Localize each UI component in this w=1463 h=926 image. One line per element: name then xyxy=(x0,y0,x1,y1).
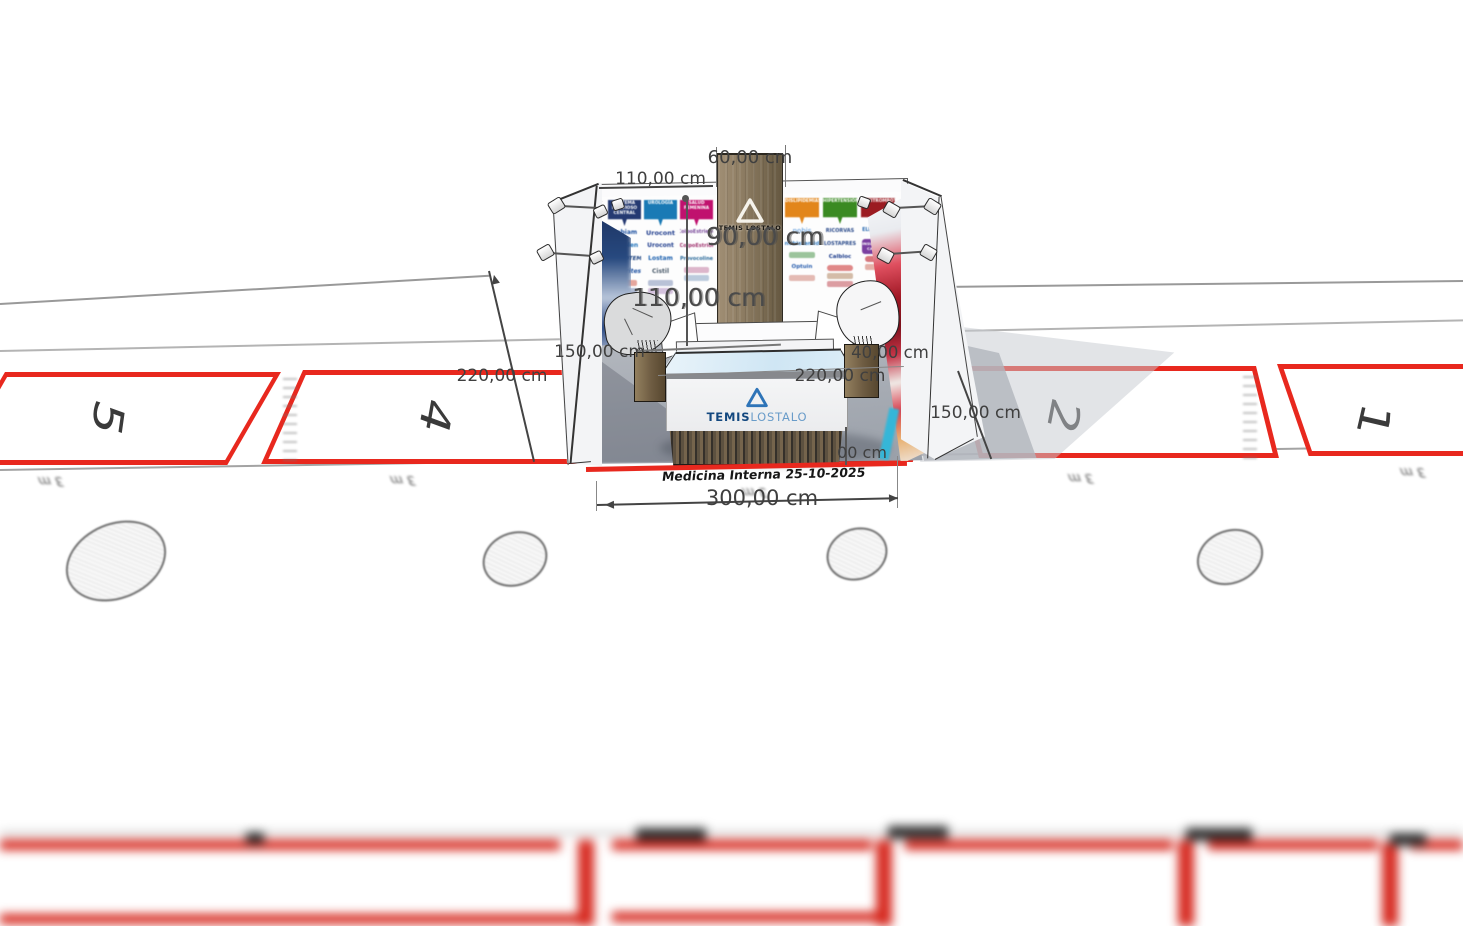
floor-tick-label: 3 m xyxy=(388,472,418,487)
fg-red-band xyxy=(612,840,872,850)
category-header: HIPERTENSIÓN xyxy=(823,198,857,224)
brand-logo-smudge xyxy=(827,273,853,279)
dim-label-partial: 00 cm xyxy=(832,443,892,462)
fg-smudge xyxy=(246,832,264,844)
extension-line-right xyxy=(938,280,1463,287)
counter-triangle-icon xyxy=(745,387,769,408)
dim-label-column-width: 60,00 cm xyxy=(700,147,800,168)
dim-label-right-floor: 150,00 cm xyxy=(928,403,1023,423)
floor-tick-label: 3 m xyxy=(36,473,66,488)
floor-space-5 xyxy=(0,372,281,465)
category-header: UROLOGÍA xyxy=(644,200,677,226)
brand-column-hipertension: HIPERTENSIÓN RICORVAS LOSTAPRES Calbloc xyxy=(823,198,857,289)
counter-logo-text: TEMISLOSTALO xyxy=(707,410,808,424)
foreground-blurred-row xyxy=(0,826,1463,926)
brand-logo: Urocont xyxy=(644,239,677,252)
brand-logo: LOSTAPRES xyxy=(823,237,857,250)
dim-dot xyxy=(682,195,689,202)
fg-red-band-bottom xyxy=(612,912,877,922)
brand-logo-smudge xyxy=(684,267,709,273)
counter-front: TEMISLOSTALO xyxy=(666,379,848,431)
fg-smudge xyxy=(636,828,706,841)
fg-red-vertical xyxy=(876,840,892,926)
counter-wood-slat-base xyxy=(668,431,844,466)
dim-label-top-left: 110,00 cm xyxy=(608,169,713,189)
floor-tick-label: 3 m xyxy=(1398,464,1428,479)
spotlight-icon xyxy=(536,243,555,262)
sketch-line xyxy=(624,319,633,336)
brand-logo: Provocoline xyxy=(680,252,713,265)
floor-column-ellipse xyxy=(53,506,178,617)
event-floor-label: Medicina Interna 25-10-2025 xyxy=(661,465,843,484)
dim-label-right-small: 40,00 cm xyxy=(846,343,934,362)
brand-logo: Lostam xyxy=(644,252,677,265)
brand-logo: Calbloc xyxy=(823,250,857,263)
divider-dimension-strip xyxy=(283,378,297,464)
brand-logo-smudge xyxy=(789,275,815,281)
fg-red-band xyxy=(0,840,560,850)
floor-column-ellipse xyxy=(819,519,895,589)
counter-logo-lostalo: LOSTALO xyxy=(750,410,807,424)
brand-logo-smudge xyxy=(827,265,853,271)
dim-label-column-depth: 90,00 cm xyxy=(706,222,816,251)
fg-smudge xyxy=(1390,834,1426,846)
sketch-line xyxy=(860,301,881,310)
dim-line-vertical xyxy=(686,199,688,346)
fg-smudge xyxy=(888,826,948,839)
fg-red-band-bottom xyxy=(0,914,578,924)
dim-label-booth-width: 300,00 cm xyxy=(692,486,832,510)
floor-tick-label: 3 m xyxy=(1066,470,1096,485)
fg-red-band xyxy=(905,840,1173,850)
fg-red-vertical xyxy=(578,840,594,926)
dim-ext-tick xyxy=(897,456,898,508)
dim-label-mid: 110,00 cm xyxy=(632,283,747,312)
dim-label-left-wall: 150,00 cm xyxy=(552,342,647,362)
counter-logo-temis: TEMIS xyxy=(707,410,751,424)
extension-line-left xyxy=(0,275,489,305)
brand-logo: Optuin xyxy=(785,260,819,273)
brand-logo-smudge xyxy=(789,252,815,258)
category-header: DISLIPIDEMIAS xyxy=(785,198,819,224)
brand-logo-smudge xyxy=(684,275,709,281)
floor-column-ellipse xyxy=(475,522,555,595)
dim-ext-tick xyxy=(596,481,597,511)
fg-red-vertical xyxy=(1382,842,1398,926)
temis-triangle-icon xyxy=(735,197,765,224)
fg-red-vertical xyxy=(1178,840,1194,926)
brand-logo: Cistil xyxy=(644,265,677,278)
floor-column-ellipse xyxy=(1188,519,1271,595)
fg-smudge xyxy=(1186,828,1252,841)
dim-label-counter: 220,00 cm xyxy=(790,366,890,386)
fg-red-band xyxy=(1208,840,1378,850)
dim-label-height-left: 220,00 cm xyxy=(448,366,556,386)
brand-column-urologia: UROLOGÍA Urocont Urocont Lostam Cistil xyxy=(644,200,677,296)
divider-dimension-strip xyxy=(1243,376,1257,460)
brand-logo: RICORVAS xyxy=(823,224,857,237)
sketchup-viewport[interactable]: 5 4 2 1 3 m 3 m 3 m 3 m 3 m SISTEMA NERV… xyxy=(0,0,1463,926)
brand-logo: Urocont xyxy=(644,226,677,239)
